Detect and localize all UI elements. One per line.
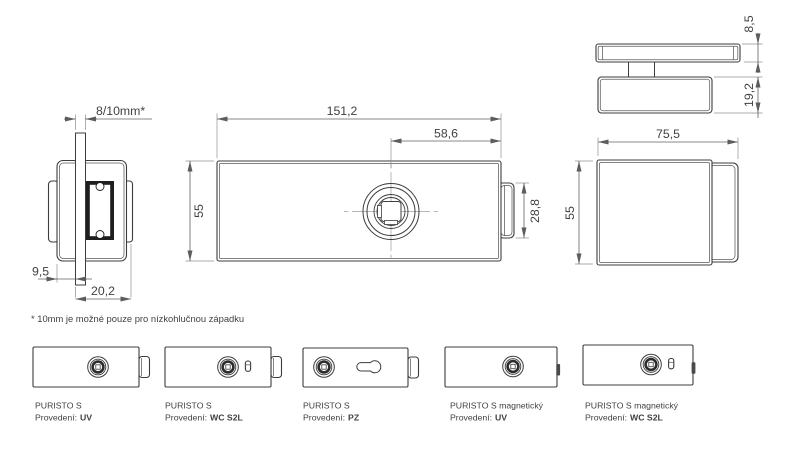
lock-body-front [217, 161, 501, 261]
spindle-square-hole [381, 202, 401, 222]
latch-tab [139, 357, 150, 378]
spindle-hole-icon [511, 364, 515, 368]
pz-keyhole-icon [357, 361, 381, 373]
variant-name: PURISTO S [303, 401, 350, 411]
glass-pane [76, 133, 86, 285]
spindle-hole-icon [322, 365, 326, 369]
variant-thumbnail-magnetic-uv: PURISTO S magnetický Provedení:UV [445, 347, 560, 423]
dim-clamp-offset-label: 9,5 [32, 265, 49, 279]
dim-cover-and-body-thickness: 8,5 19,2 [714, 15, 763, 118]
dim-spindle-to-edge-label: 58,6 [434, 127, 458, 141]
variant-body [583, 345, 693, 385]
variant-thumbnail-pz: PURISTO S Provedení:PZ [303, 348, 419, 423]
spindle-notch-bottom [385, 221, 398, 225]
body-plan [597, 160, 712, 265]
plan-view [597, 160, 738, 265]
spindle-hole-icon [226, 365, 230, 369]
wc-turn-pin-icon [245, 361, 250, 371]
variant-name: PURISTO S [35, 401, 82, 411]
spindle-notch-left [378, 206, 382, 218]
side-section-view [49, 133, 133, 285]
dim-body-thickness-label: 19,2 [742, 83, 756, 107]
variant-finish: Provedení:PZ [303, 413, 360, 423]
body-profile [598, 77, 712, 113]
spindle-hole-icon [96, 365, 100, 369]
magnetic-latch-nub [556, 364, 560, 376]
latch-tab [408, 357, 419, 378]
variant-thumbnail-uv: PURISTO S Provedení:UV [33, 347, 150, 423]
variant-finish: Provedení:UV [35, 413, 92, 423]
wc-turn-pin-icon [669, 359, 674, 369]
variant-name: PURISTO S magnetický [450, 401, 544, 411]
clamp-channel-inner [90, 185, 110, 236]
dim-cover-thickness-label: 8,5 [742, 15, 756, 32]
variant-finish: Provedení:UV [450, 413, 507, 423]
dim-glass-thickness: 8/10mm* [64, 104, 152, 130]
dim-front-height: 55 [186, 161, 215, 261]
dim-front-width: 151,2 [217, 104, 501, 158]
latch-tab [271, 357, 282, 378]
dim-top-height: 55 [563, 161, 593, 264]
dim-glass-thickness-label: 8/10mm* [96, 104, 145, 118]
dim-latch-height: 28,8 [516, 183, 543, 238]
lock-dimension-drawing: 8/10mm* 151,2 58,6 55 28,8 [0, 0, 800, 458]
spindle-hole-icon [649, 362, 653, 366]
variant-thumbnail-magnetic-wc-s2l: PURISTO S magnetický Provedení:WC S2L [583, 345, 695, 423]
technical-drawing-page: 8/10mm* 151,2 58,6 55 28,8 [0, 0, 800, 458]
footnote: * 10mm je možné pouze pro nízkohlučnou z… [31, 313, 244, 324]
front-view [217, 161, 514, 261]
dim-top-width-label: 75,5 [656, 127, 680, 141]
variant-thumbnails: PURISTO S Provedení:UV PURISTO S Provede… [33, 345, 695, 423]
variant-name: PURISTO S [165, 401, 212, 411]
channel-notch-bottom [96, 231, 104, 239]
channel-notch-top [96, 183, 104, 191]
dim-top-height-label: 55 [563, 206, 577, 220]
variant-finish: Provedení:WC S2L [585, 413, 664, 423]
dim-top-width: 75,5 [598, 127, 738, 159]
magnetic-latch-nub [692, 362, 696, 374]
dim-front-height-label: 55 [192, 204, 206, 218]
clamp-channel [86, 181, 114, 240]
variant-thumbnail-wc-s2l: PURISTO S Provedení:WC S2L [165, 347, 282, 423]
variant-name: PURISTO S magnetický [585, 401, 679, 411]
top-profile-view [596, 44, 740, 113]
variant-body [33, 347, 139, 387]
dim-latch-height-label: 28,8 [528, 199, 542, 223]
variant-body [445, 347, 557, 387]
dim-side-depth-label: 20,2 [91, 284, 115, 298]
dim-front-width-label: 151,2 [327, 104, 358, 118]
variant-finish: Provedení:WC S2L [165, 413, 244, 423]
cover-plate-profile [596, 44, 740, 62]
